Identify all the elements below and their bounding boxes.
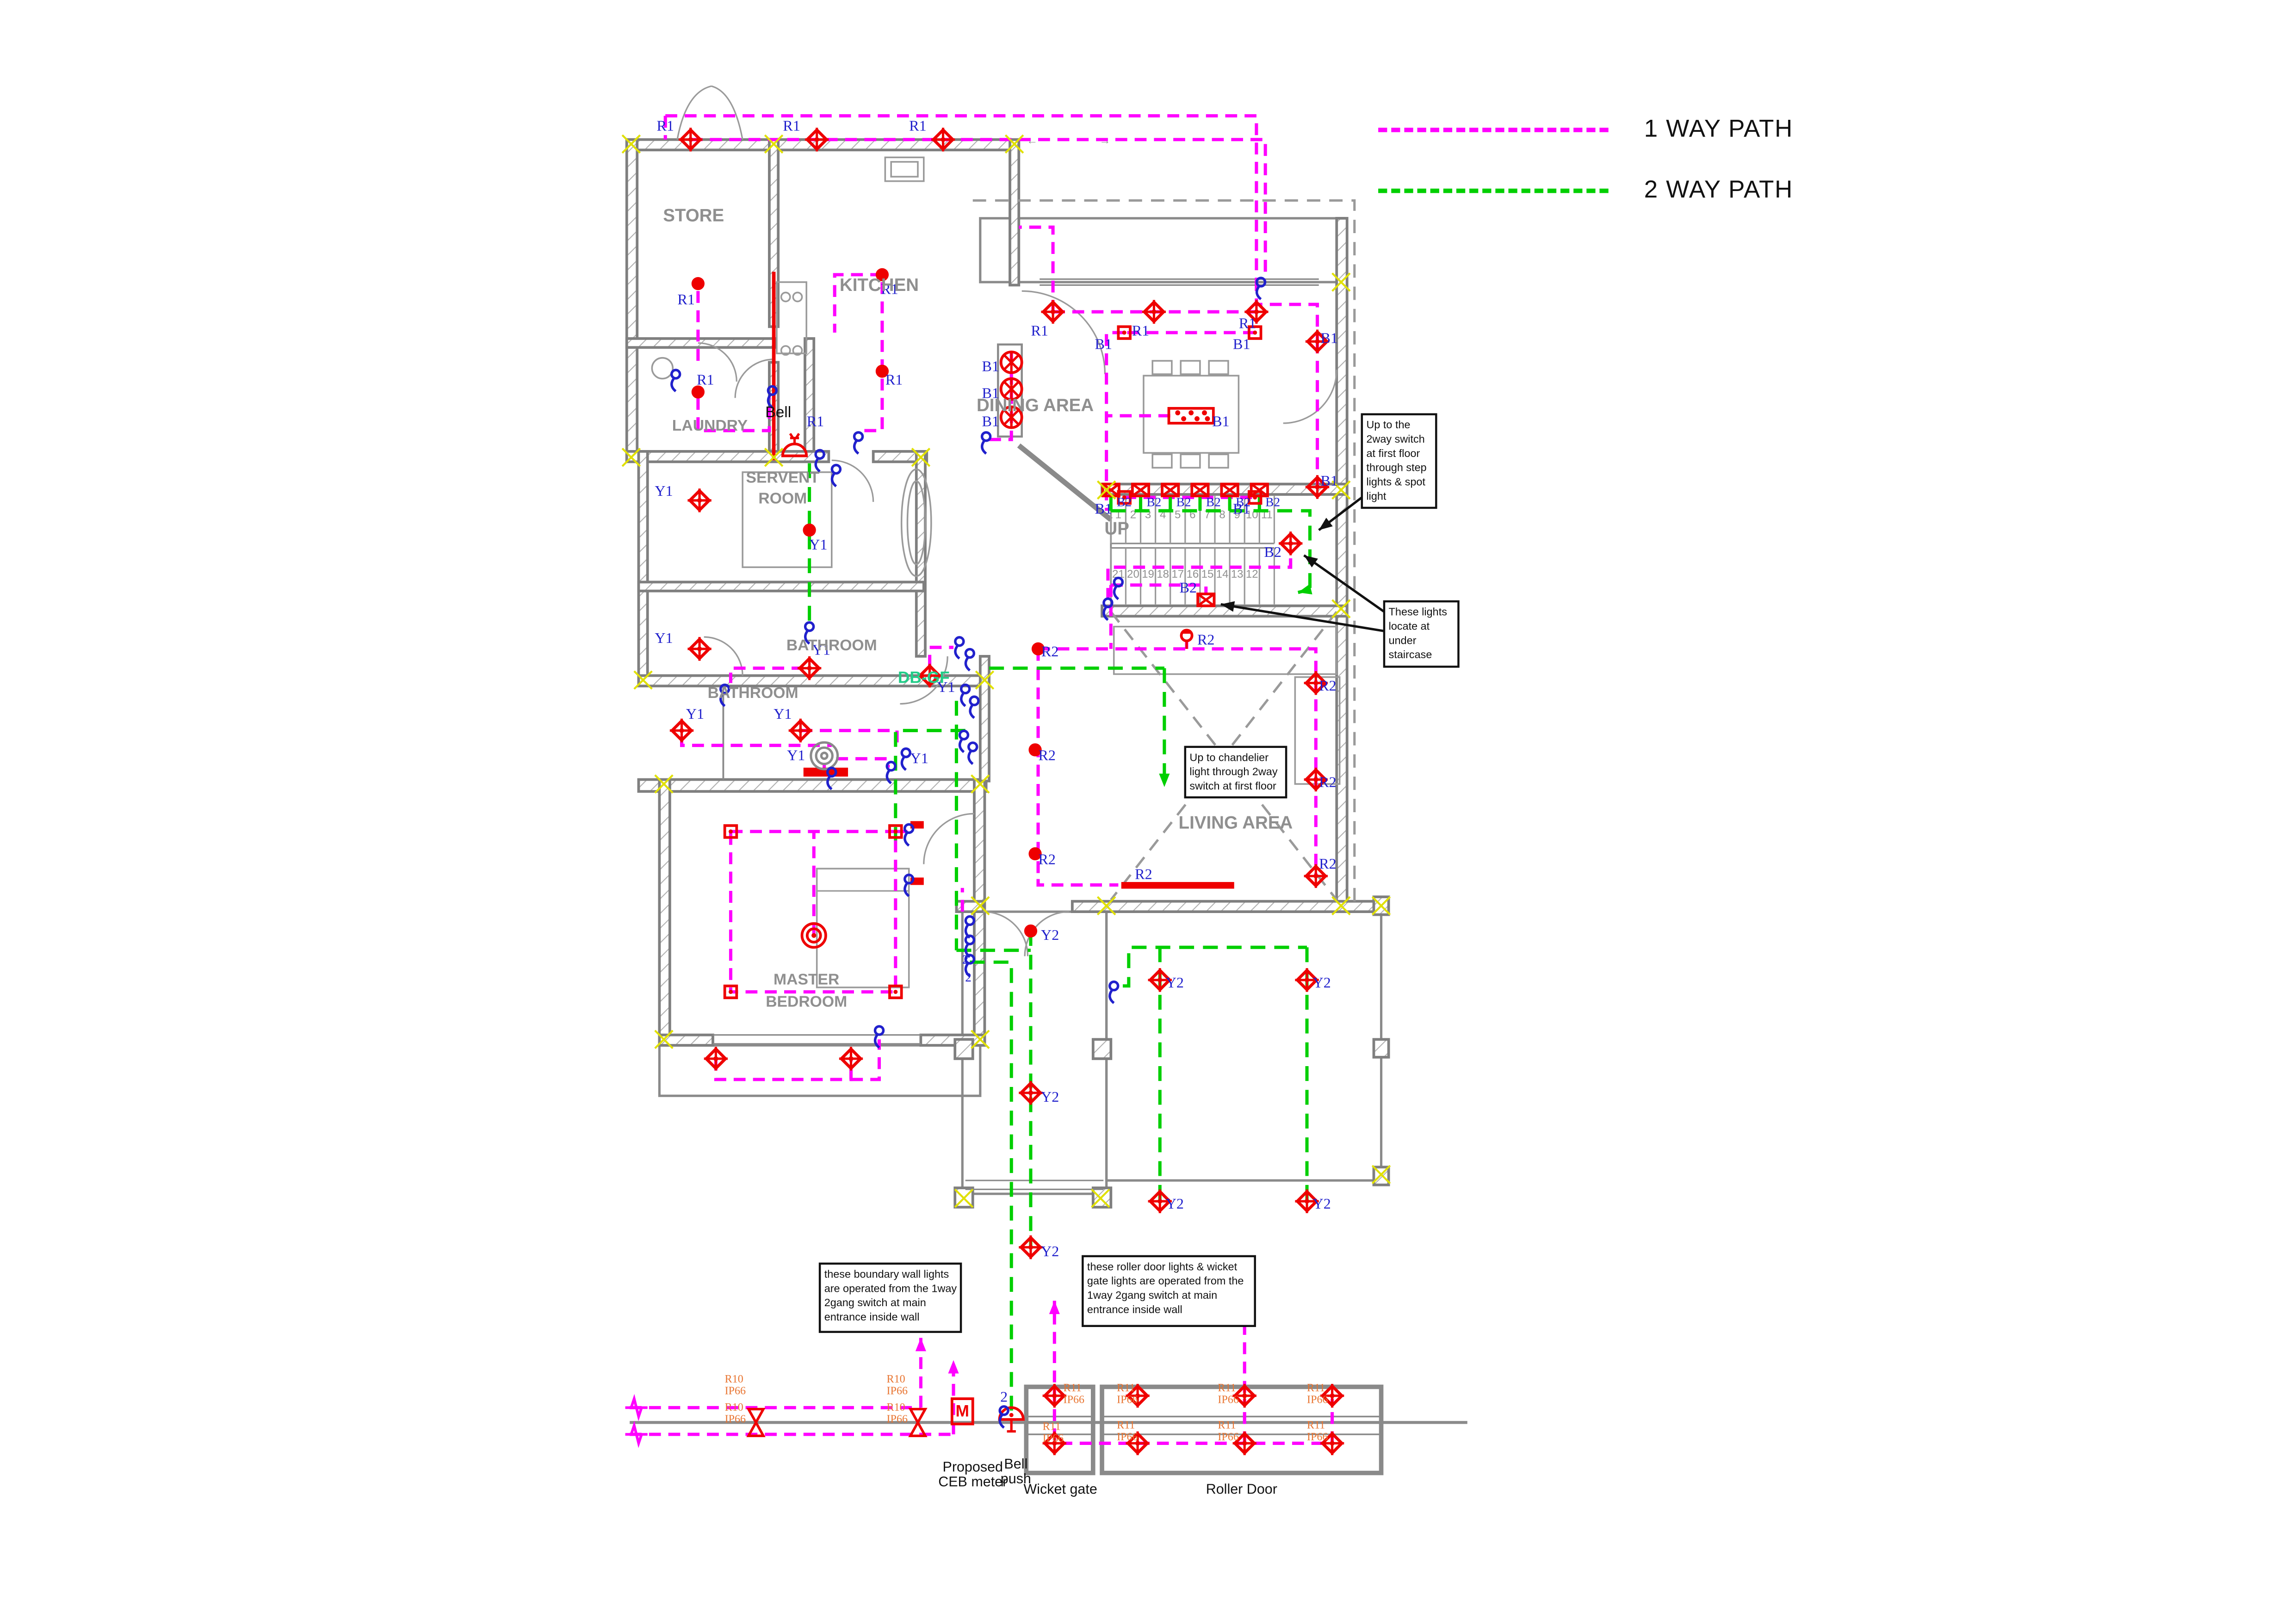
- label-ip66: IP66: [887, 1413, 908, 1425]
- label-laundry: LAUNDRY: [672, 417, 748, 434]
- light-M: M: [952, 1399, 973, 1424]
- label-b1: B1: [1095, 500, 1112, 517]
- label-r1: R1: [1031, 322, 1048, 339]
- text: M: [956, 1402, 969, 1420]
- circle: [1051, 309, 1055, 314]
- label-r2: R2: [1319, 855, 1336, 872]
- arrow-head: [916, 1338, 926, 1351]
- wire-1way: [716, 1059, 851, 1080]
- label-b2: B2: [1264, 543, 1281, 560]
- label-wicket-gate: Wicket gate: [1024, 1481, 1097, 1497]
- label--: →: [1099, 134, 1110, 147]
- circle: [1313, 874, 1318, 878]
- two-way-path-label: 2 WAY PATH: [1644, 176, 1793, 204]
- switch-symbol: [902, 749, 910, 770]
- stair-number: 20: [1127, 568, 1139, 580]
- label-proposed: Proposed: [942, 1459, 1003, 1475]
- circle: [1194, 416, 1200, 421]
- furniture: [743, 472, 832, 567]
- circle: [887, 762, 895, 771]
- label-r1: R1: [783, 117, 800, 134]
- label-y2: Y2: [1041, 1088, 1059, 1105]
- annotation-text: light through 2way: [1189, 765, 1277, 778]
- annotation-box-4: these boundary wall lightsare operated f…: [820, 1264, 961, 1332]
- furniture: [1181, 454, 1200, 468]
- door-swing-arc: [712, 86, 743, 140]
- switch-symbol: [969, 743, 977, 764]
- arrow-head: [1049, 1301, 1060, 1314]
- circle: [969, 743, 977, 751]
- circle: [1315, 485, 1319, 489]
- circle: [1242, 1394, 1247, 1398]
- label-bell: Bell: [1004, 1456, 1027, 1472]
- wall-segment: [638, 582, 923, 591]
- label-r1: R1: [656, 117, 674, 134]
- circle: [805, 623, 814, 631]
- circle: [965, 936, 974, 944]
- circle: [1305, 1199, 1309, 1203]
- label-r10: R10: [725, 1373, 743, 1385]
- label-r11: R11: [1218, 1419, 1236, 1431]
- circle: [729, 990, 733, 994]
- stair-number: 15: [1201, 568, 1214, 580]
- label-ceb-meter: CEB meter: [938, 1474, 1007, 1490]
- label-r11: R11: [1307, 1419, 1325, 1431]
- path: [1114, 586, 1118, 599]
- light-R1: [1142, 300, 1166, 323]
- furniture: [1152, 361, 1172, 374]
- label--: ←: [1027, 134, 1038, 147]
- path: [902, 757, 906, 770]
- circle: [1114, 578, 1122, 586]
- path: [887, 770, 891, 784]
- stair-number: 19: [1142, 568, 1154, 580]
- label-b2: B2: [1146, 495, 1161, 509]
- circle: [803, 524, 816, 537]
- switch-symbol: [965, 649, 974, 671]
- label-ip66: IP66: [1218, 1431, 1238, 1443]
- label-bedroom: BEDROOM: [766, 993, 847, 1011]
- stair-number: 12: [1246, 568, 1258, 580]
- circle: [965, 916, 974, 925]
- light-Y1: [687, 637, 711, 660]
- circle: [832, 465, 840, 473]
- label-r1: R1: [909, 117, 926, 134]
- circle: [1202, 410, 1207, 415]
- circle: [1242, 1441, 1247, 1445]
- label-2: 2: [1000, 1388, 1008, 1405]
- annotation-text: these roller door lights & wicket: [1087, 1260, 1238, 1272]
- circle: [697, 498, 702, 503]
- circle: [1181, 416, 1186, 421]
- annotation-text: at first floor: [1366, 447, 1420, 459]
- annotation-box-2: These lightslocate atunderstaircase: [1384, 601, 1459, 666]
- wire-1way: [861, 282, 882, 431]
- annotation-text: are operated from the 1way: [824, 1282, 957, 1294]
- label-b2: B2: [1176, 495, 1191, 509]
- annotation-text: these boundary wall lights: [824, 1268, 949, 1280]
- label-ip66: IP66: [1043, 1432, 1064, 1444]
- annotation-text: 1way 2gang switch at main: [1087, 1289, 1217, 1301]
- label-b1: B1: [1320, 472, 1337, 489]
- circle: [1330, 1441, 1335, 1445]
- circle: [965, 649, 974, 658]
- wall-segment: [805, 339, 814, 451]
- wall-segment: [1337, 218, 1347, 912]
- light-R1: [1041, 300, 1064, 323]
- light-B1: [1001, 352, 1022, 373]
- legend-item-2way: 2 WAY PATH: [1378, 174, 1793, 207]
- circle: [1122, 331, 1126, 335]
- label-master: MASTER: [774, 970, 839, 988]
- door-swing-arc: [1283, 370, 1337, 423]
- circle: [854, 432, 863, 441]
- label-2: 2: [962, 952, 969, 966]
- label-2: 2: [965, 970, 972, 984]
- wall-segment: [1010, 140, 1019, 285]
- light-Y1: [811, 742, 838, 769]
- switch-symbol: [970, 697, 978, 718]
- furniture: [1209, 361, 1228, 374]
- path: [1257, 286, 1261, 299]
- switch-symbol: [905, 824, 913, 845]
- annotation-text: entrance inside wall: [1087, 1303, 1182, 1315]
- stair-number: 16: [1186, 568, 1199, 580]
- annotation-box-3: Up to chandelierlight through 2wayswitch…: [1185, 747, 1286, 797]
- light-Y2: [704, 1047, 728, 1070]
- furniture: [891, 162, 918, 177]
- label-ip66: IP66: [1064, 1394, 1084, 1406]
- circle: [1254, 309, 1259, 314]
- label-r10: R10: [725, 1401, 743, 1413]
- label-ip66: IP66: [887, 1385, 908, 1397]
- annotation-text: locate at: [1389, 620, 1430, 632]
- label-r2: R2: [1135, 865, 1152, 882]
- circle: [1313, 681, 1318, 685]
- wire-1way: [682, 736, 832, 745]
- annotation-text: entrance inside wall: [824, 1311, 920, 1323]
- path: [982, 440, 986, 454]
- door-swing-arc: [924, 814, 974, 864]
- annotation-text: through step: [1366, 462, 1426, 474]
- circle: [941, 137, 945, 142]
- label-r11: R11: [1117, 1419, 1135, 1431]
- circle: [970, 697, 978, 705]
- wire-break: [625, 1426, 648, 1444]
- label-r11: R11: [1064, 1382, 1082, 1394]
- label-store: STORE: [663, 205, 724, 225]
- label-r2: R2: [1041, 643, 1058, 660]
- wall-segment: [659, 779, 669, 1045]
- circle: [1288, 541, 1293, 546]
- label-y1: Y1: [809, 536, 827, 553]
- label-ip66: IP66: [1307, 1394, 1328, 1406]
- path: [1110, 990, 1114, 1003]
- light-Y2: [839, 1047, 863, 1070]
- label-kitchen: KITCHEN: [840, 275, 919, 295]
- wall-segment: [1093, 1039, 1111, 1059]
- circle: [1305, 978, 1309, 982]
- label-r10: R10: [887, 1373, 905, 1385]
- label-ip66: IP66: [1117, 1431, 1138, 1443]
- circle: [1315, 339, 1319, 344]
- label-r10: R10: [887, 1401, 905, 1413]
- circle: [1028, 1245, 1033, 1250]
- label-ip66: IP66: [725, 1413, 746, 1425]
- path: [905, 832, 909, 845]
- wire-1way: [930, 648, 953, 667]
- path: [672, 378, 676, 391]
- annotation-box-1: Up to the2way switchat first floorthroug…: [1362, 414, 1436, 508]
- label-y1: Y1: [686, 705, 704, 722]
- label-b2: B2: [1265, 495, 1280, 509]
- label-y1: Y1: [774, 705, 792, 722]
- label-y2: Y2: [1041, 1243, 1059, 1259]
- stair-number: 13: [1231, 568, 1244, 580]
- path: [961, 693, 965, 706]
- furniture: [1181, 361, 1200, 374]
- switch-symbol: [959, 731, 968, 752]
- furniture-circle: [652, 358, 673, 379]
- arrow-head: [1319, 518, 1333, 530]
- label-y2: Y2: [1313, 1195, 1331, 1212]
- annotation-text: gate lights are operated from the: [1087, 1275, 1244, 1287]
- circle: [729, 829, 733, 833]
- one-way-path-label: 1 WAY PATH: [1644, 115, 1793, 143]
- circle: [902, 749, 910, 757]
- circle: [848, 1056, 853, 1061]
- circle: [798, 728, 803, 733]
- label-ip66: IP66: [1117, 1394, 1138, 1406]
- circle: [815, 137, 819, 142]
- furniture: [1152, 454, 1172, 468]
- label-roller-door: Roller Door: [1206, 1481, 1277, 1497]
- light-Y2: [1019, 1235, 1042, 1259]
- switch-symbol: [832, 465, 840, 486]
- wall-segment: [955, 1039, 973, 1059]
- circle: [679, 728, 684, 733]
- label-r11: R11: [1218, 1382, 1236, 1394]
- circle: [816, 747, 832, 764]
- label-bathroom: BATHROOM: [786, 636, 877, 654]
- circle: [1151, 309, 1156, 314]
- label-b1: B1: [982, 358, 999, 375]
- label-db-gf: DB-GF: [898, 669, 950, 687]
- label-r11: R11: [1043, 1421, 1061, 1433]
- wire-1way: [836, 759, 888, 767]
- label-r2: R2: [1039, 747, 1056, 764]
- circle: [1175, 410, 1180, 415]
- annotation-box-5: these roller door lights & wicketgate li…: [1083, 1256, 1255, 1326]
- label-ip66: IP66: [1307, 1431, 1328, 1443]
- circle: [955, 637, 964, 646]
- stair-number: 17: [1171, 568, 1184, 580]
- label-y2: Y2: [1041, 926, 1059, 943]
- circle: [692, 277, 705, 290]
- annotation-text: 2gang switch at main: [824, 1296, 926, 1308]
- label-y1: Y1: [787, 747, 805, 764]
- wall-segment: [980, 656, 989, 781]
- circle: [807, 666, 811, 670]
- label-b2: B2: [1180, 579, 1197, 596]
- switch-symbol: [961, 685, 970, 706]
- light-Y1: [789, 719, 812, 742]
- label-r2: R2: [1319, 773, 1336, 790]
- circle: [1052, 1394, 1057, 1398]
- light-Y1: [670, 719, 693, 742]
- wall-segment: [638, 779, 986, 791]
- one-way-path-line-sample: [1378, 127, 1609, 131]
- label-y2: Y2: [1166, 974, 1184, 991]
- label-r1: R1: [697, 371, 714, 388]
- two-way-path-line-sample: [1378, 188, 1609, 192]
- label-r2: R2: [1197, 631, 1214, 648]
- arrow-head: [1159, 774, 1170, 787]
- circle: [893, 829, 897, 833]
- light-B2: [1279, 531, 1302, 555]
- label-y2: Y2: [1166, 1195, 1184, 1212]
- circle: [1110, 982, 1118, 990]
- path: [832, 473, 836, 486]
- stair-number: 5: [1175, 508, 1181, 521]
- circle: [672, 370, 680, 378]
- path: [965, 657, 970, 671]
- label-servent: SERVENT: [746, 469, 820, 486]
- circle: [821, 753, 827, 759]
- path: [960, 739, 964, 752]
- circle: [893, 990, 897, 994]
- furniture-circle: [781, 292, 790, 301]
- path: [970, 704, 974, 718]
- wall-segment: [627, 140, 637, 460]
- label-r1: R1: [807, 413, 824, 429]
- label-r11: R11: [1307, 1382, 1325, 1394]
- label-ip66: IP66: [1218, 1394, 1238, 1406]
- wire-1way: [1038, 879, 1118, 885]
- circle: [1028, 1091, 1033, 1095]
- annotation-text: Up to chandelier: [1189, 751, 1269, 763]
- label-b2: B2: [1206, 495, 1221, 509]
- path: [969, 751, 973, 764]
- switch-symbol: [1110, 982, 1118, 1003]
- light-Y1: [687, 488, 711, 512]
- circle: [688, 137, 693, 142]
- red-fixture: [1121, 882, 1234, 889]
- label-r2: R2: [1039, 851, 1056, 867]
- switch-symbol: [672, 370, 680, 391]
- wire-1way: [1019, 227, 1053, 312]
- light-Y1: [803, 524, 816, 537]
- furniture-circle: [793, 292, 802, 301]
- label-b2: B2: [1236, 495, 1250, 509]
- path: [955, 645, 959, 659]
- light-B1: [1169, 408, 1213, 423]
- label-r11: R11: [1117, 1382, 1135, 1394]
- circle: [1009, 1413, 1014, 1417]
- annotation-text: Up to the: [1366, 419, 1410, 431]
- label-b1: B1: [1095, 335, 1112, 352]
- circle: [811, 933, 816, 938]
- legend: 1 WAY PATH 2 WAY PATH: [1378, 113, 1793, 235]
- circle: [697, 647, 702, 651]
- label-r2: R2: [1319, 677, 1336, 694]
- wall-segment: [1102, 606, 1347, 616]
- circle: [713, 1056, 718, 1061]
- label-y1: Y1: [655, 629, 673, 646]
- light-R2: [1181, 630, 1192, 648]
- label-ip66: IP66: [725, 1385, 746, 1397]
- slab-outline: [1107, 909, 1381, 1180]
- circle: [1104, 599, 1112, 607]
- floor-plan-drawing: 123456789101121201918171615141312MR1R1R1…: [0, 0, 2296, 1623]
- label-bathroom: BATHROOM: [708, 684, 798, 702]
- switch-symbol: [1114, 578, 1122, 599]
- circle: [1313, 777, 1318, 782]
- annotation-text: lights & spot: [1366, 475, 1425, 488]
- annotation-text: under: [1389, 634, 1417, 646]
- wall-segment: [638, 451, 647, 686]
- label-b2: B2: [1117, 495, 1132, 509]
- circle: [1157, 1199, 1162, 1203]
- label-y1: Y1: [910, 750, 928, 766]
- circle: [905, 824, 913, 833]
- floor-plan-stage: 123456789101121201918171615141312MR1R1R1…: [0, 0, 2296, 1623]
- legend-item-1way: 1 WAY PATH: [1378, 113, 1793, 146]
- switch-symbol: [955, 637, 964, 659]
- stair-number: 18: [1157, 568, 1169, 580]
- annotation-text: switch at first floor: [1189, 780, 1276, 792]
- label-bell: Bell: [765, 403, 791, 421]
- light-R1: [692, 277, 705, 290]
- furniture: [777, 282, 806, 353]
- furniture: [1114, 627, 1337, 674]
- furniture: [1209, 454, 1228, 468]
- switch-symbol: [854, 432, 863, 454]
- label-up: UP: [1104, 519, 1129, 539]
- wire-break: [625, 1399, 648, 1417]
- path: [854, 440, 859, 454]
- label-r1: R1: [1132, 322, 1149, 339]
- slab-outline: [659, 1045, 980, 1096]
- label-dining-area: DINING AREA: [977, 395, 1094, 415]
- circle: [982, 432, 990, 441]
- circle: [1205, 416, 1210, 421]
- circle: [1330, 1394, 1335, 1398]
- annotation-text: These lights: [1389, 606, 1447, 618]
- label-b1: B1: [1233, 335, 1250, 352]
- stair-number: 14: [1216, 568, 1229, 580]
- label-y2: Y2: [1313, 974, 1331, 991]
- wall-segment: [1374, 1039, 1389, 1057]
- circle: [959, 731, 968, 739]
- label-room: ROOM: [758, 489, 807, 507]
- annotation-text: staircase: [1389, 648, 1432, 660]
- label-living-area: LIVING AREA: [1179, 813, 1293, 833]
- annotation-text: 2way switch: [1366, 433, 1424, 445]
- roof-dashed-line: [973, 200, 1355, 908]
- arrow-head: [1304, 555, 1318, 568]
- label-b1: B1: [1320, 330, 1337, 346]
- circle: [1157, 978, 1162, 982]
- label-r1: R1: [1239, 315, 1256, 331]
- arrow-head: [948, 1360, 959, 1374]
- light-Y2: [1019, 1081, 1042, 1105]
- label-r1: R1: [677, 291, 694, 308]
- label-r1: R1: [885, 371, 903, 388]
- label-b1: B1: [1212, 413, 1229, 429]
- annotation-text: light: [1366, 490, 1386, 502]
- circle: [875, 1026, 884, 1035]
